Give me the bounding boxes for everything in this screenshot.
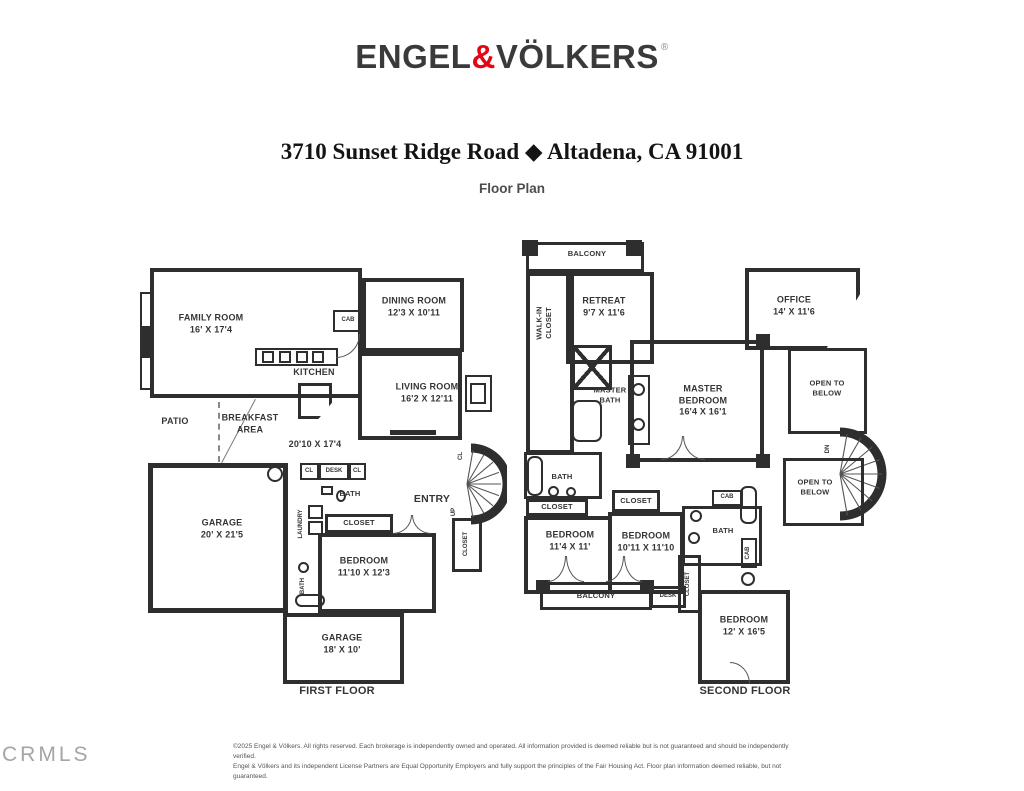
open-to-below-lower-label: OPEN TO BELOW: [791, 477, 839, 497]
balcony-bottom-label: BALCONY: [577, 591, 615, 601]
door-arc: [412, 515, 431, 534]
sink-fixture: [321, 486, 333, 495]
sink-fixture: [566, 487, 576, 497]
toilet-fixture: [548, 486, 559, 497]
sink-fixture: [690, 510, 702, 522]
garage-rear-label: GARAGE18' X 10': [322, 632, 363, 655]
corner-post: [536, 580, 550, 594]
dn-label: DN: [825, 445, 833, 454]
bedroom-2-label: BEDROOM10'11 X 11'10: [618, 530, 675, 553]
bathtub-fixture: [527, 456, 543, 496]
bedroom-label: BEDROOM11'10 X 12'3: [338, 555, 390, 578]
office-label: OFFICE14' X 11'6: [773, 294, 815, 317]
cl-stairs-label: CL: [458, 452, 466, 460]
appliance: [312, 351, 324, 363]
bath-label: BATH: [339, 489, 360, 499]
closet-entry-label: CLOSET: [463, 532, 471, 556]
cab-label: CAB: [342, 317, 355, 325]
brand-logo: ENGEL&VÖLKERS®: [0, 38, 1024, 76]
open-to-below-upper-label: OPEN TO BELOW: [803, 378, 851, 398]
family-room-label: FAMILY ROOM16' X 17'4: [179, 312, 244, 335]
dining-room-label: DINING ROOM12'3 X 10'11: [382, 295, 446, 318]
walk-in-closet-label: WALK-IN CLOSET: [534, 306, 554, 339]
balcony-top-label: BALCONY: [568, 249, 606, 259]
second-floor-caption: SECOND FLOOR: [699, 684, 790, 698]
washer-box: [308, 505, 323, 519]
first-floor-plan: FAMILY ROOM16' X 17'4 DINING ROOM12'3 X …: [140, 262, 512, 707]
wall-segment: [390, 430, 436, 435]
cl-label: CL: [305, 468, 313, 476]
floor-plan-page: ENGEL&VÖLKERS® 3710 Sunset Ridge Road ◆ …: [0, 0, 1024, 791]
cl-label: CL: [353, 468, 361, 476]
desk-label: DESK: [660, 593, 677, 601]
door-arc: [393, 515, 412, 534]
retreat-label: RETREAT9'7 X 11'6: [582, 295, 625, 318]
garage-label: GARAGE20' X 21'5: [201, 517, 243, 540]
second-floor-plan: BALCONY WALK-IN CLOSET RETREAT9'7 X 11'6…: [520, 238, 920, 708]
spiral-staircase-up-icon: [435, 440, 507, 528]
entry-label: ENTRY: [414, 493, 450, 507]
appliance: [262, 351, 274, 363]
sink-fixture: [741, 572, 755, 586]
closet-2-label: CLOSET: [620, 496, 652, 506]
bathtub-fixture: [295, 594, 325, 607]
closet-label: CLOSET: [343, 518, 375, 528]
appliance: [279, 351, 291, 363]
cab-1-label: CAB: [721, 494, 734, 502]
closet-hall-label: CLOSET: [541, 502, 573, 512]
master-bath-label: MASTER BATH: [590, 385, 630, 405]
disclaimer-line-1: ©2025 Engel & Völkers. All rights reserv…: [233, 742, 808, 762]
brand-name-left: ENGEL: [355, 38, 471, 75]
corner-post: [626, 454, 640, 468]
water-heater: [267, 466, 283, 482]
corner-post: [756, 454, 770, 468]
bath-label: BATH: [300, 578, 308, 594]
legal-disclaimer: ©2025 Engel & Völkers. All rights reserv…: [233, 742, 808, 782]
brand-name-right: VÖLKERS: [496, 38, 659, 75]
registered-mark: ®: [661, 42, 669, 53]
kitchen-island: [298, 383, 332, 419]
shower-fixture: [572, 345, 612, 390]
kitchen-area-dims-label: 20'10 X 17'4: [289, 439, 342, 451]
brand-ampersand: &: [471, 38, 495, 75]
breakfast-area-label: BREAKFAST AREA: [219, 412, 281, 435]
bedroom-1-label: BEDROOM11'4 X 11': [546, 529, 594, 552]
bedroom-3-label: BEDROOM12' X 16'5: [720, 614, 768, 637]
kitchen-label: KITCHEN: [293, 367, 334, 379]
master-bedroom-label: MASTER BEDROOM16'4 X 16'1: [670, 383, 736, 418]
fireplace-inner: [470, 383, 486, 404]
toilet-fixture: [298, 562, 309, 573]
laundry-label: LAUNDRY: [298, 509, 306, 538]
bathtub-fixture: [740, 486, 757, 524]
corner-post: [626, 240, 642, 256]
bathtub-fixture: [572, 400, 602, 442]
desk-label: DESK: [326, 468, 343, 476]
up-label: UP: [451, 508, 459, 516]
patio-label: PATIO: [161, 416, 188, 428]
closet-3-label: CLOSET: [685, 572, 693, 596]
floor-plan-subtitle: Floor Plan: [0, 181, 1024, 196]
bath-hall-label: BATH: [551, 472, 572, 482]
fireplace-fill: [142, 326, 150, 358]
toilet-fixture: [688, 532, 700, 544]
cab-2-label: CAB: [745, 547, 753, 560]
property-address-title: 3710 Sunset Ridge Road ◆ Altadena, CA 91…: [0, 138, 1024, 165]
appliance: [296, 351, 308, 363]
living-room-label: LIVING ROOM16'2 X 12'11: [396, 381, 459, 404]
corner-post: [522, 240, 538, 256]
disclaimer-line-2: Engel & Völkers and its independent Lice…: [233, 762, 808, 782]
bath-2-label: BATH: [712, 526, 733, 536]
first-floor-caption: FIRST FLOOR: [299, 684, 375, 698]
crmls-watermark: CRMLS: [2, 743, 91, 767]
